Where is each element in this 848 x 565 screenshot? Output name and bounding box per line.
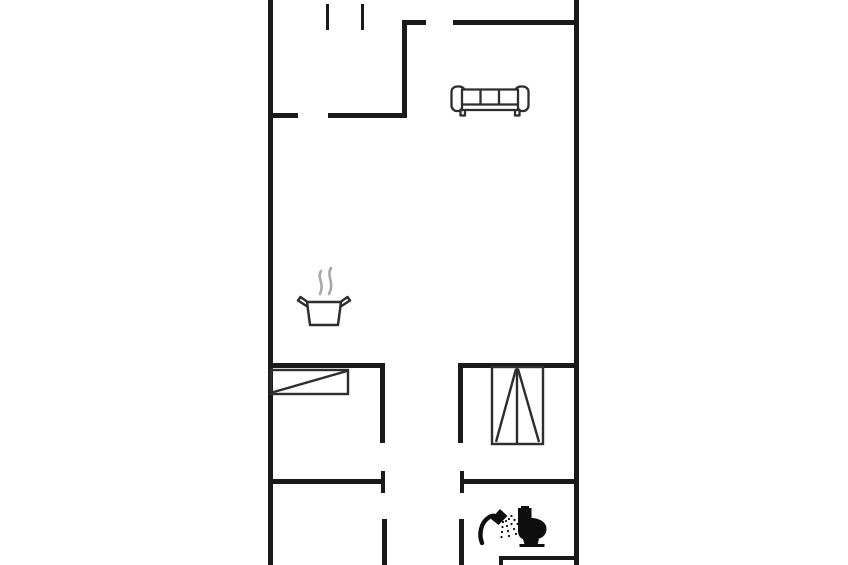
walls-layer [268, 0, 579, 565]
sofa-body [462, 90, 518, 111]
lower-divider-wall-right [462, 479, 579, 484]
steam-wisp-2 [329, 268, 331, 294]
wardrobe-right-door-diagonal-2 [518, 369, 539, 442]
hallway-wall-right-upper [458, 363, 463, 443]
hallway-wall-left-lower [382, 519, 387, 565]
door-jamb-left [381, 471, 385, 493]
toilet-base [520, 544, 545, 547]
pot-body [307, 302, 341, 325]
wardrobe-left-diagonal [272, 371, 347, 393]
entry-living-divider-wall [402, 20, 407, 118]
hallway-wall-right-lower [459, 519, 464, 565]
wardrobe-right-door-diagonal-1 [496, 369, 516, 442]
lower-divider-wall-left [268, 479, 382, 484]
door-jamb-right [460, 471, 464, 493]
entry-bottom-wall [328, 113, 407, 118]
mid-divider-wall-left [268, 363, 385, 368]
toilet-icon [518, 506, 547, 547]
toilet-pedestal [523, 539, 539, 545]
living-top-wall [453, 20, 579, 25]
floor-plan-svg [0, 0, 848, 565]
cooking-pot-icon [298, 268, 350, 325]
top-edge-tick-1 [326, 4, 329, 30]
steam-wisp-1 [320, 271, 322, 294]
shower-icon [480, 509, 520, 543]
living-top-wall-stub [402, 20, 426, 25]
floor-plan [0, 0, 848, 565]
hallway-wall-left-upper [380, 363, 385, 443]
top-edge-tick-2 [361, 4, 364, 30]
toilet-bowl [518, 518, 547, 540]
shower-head [491, 509, 508, 525]
sofa-icon [452, 87, 529, 116]
entry-bottom-wall-stub [268, 113, 298, 118]
